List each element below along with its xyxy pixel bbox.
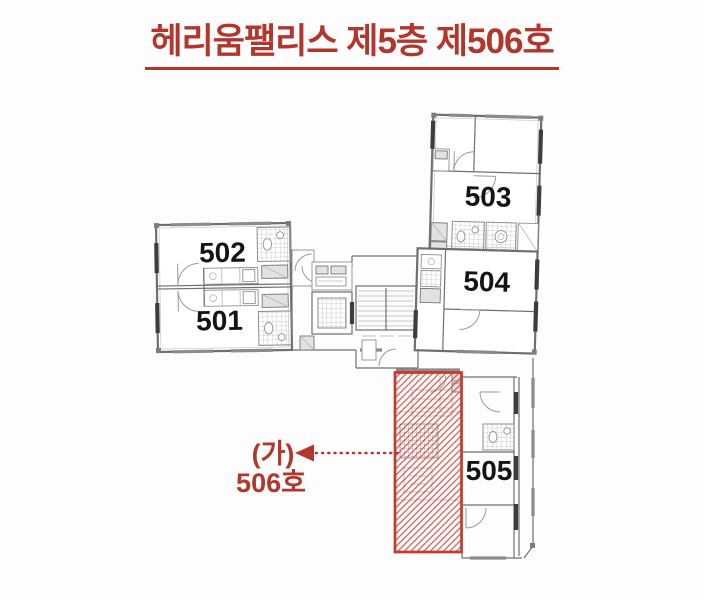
bathroom-502 bbox=[257, 227, 291, 262]
unit-503-bathrooms bbox=[452, 221, 539, 251]
stairs bbox=[356, 286, 416, 336]
scanned-floorplan-page: 헤리움팰리스 제5층 제506호 bbox=[0, 0, 704, 600]
room-label-502: 502 bbox=[199, 237, 246, 269]
bottom-wing: 505 bbox=[395, 358, 535, 558]
room-label-505: 505 bbox=[466, 455, 513, 486]
unit-506-annotation: (가) 506호 bbox=[236, 439, 402, 498]
kitchen-counter-501 bbox=[204, 289, 258, 306]
central-core bbox=[292, 250, 418, 368]
unit-505-bathroom bbox=[483, 424, 514, 450]
annotation-line1: (가) bbox=[252, 439, 295, 469]
kitchen-counter-502 bbox=[204, 267, 258, 284]
room-label-501: 501 bbox=[196, 305, 243, 337]
elevator bbox=[312, 292, 352, 334]
annotation-line2: 506호 bbox=[236, 468, 306, 498]
right-wing-units-503-504: 503 504 bbox=[415, 112, 544, 354]
unit-504-kitchen bbox=[420, 254, 441, 303]
room-label-504: 504 bbox=[463, 266, 511, 298]
dotted-arrow-to-506 bbox=[295, 445, 402, 462]
arrowhead-left-icon bbox=[295, 445, 314, 462]
machine-room bbox=[312, 262, 352, 290]
bathroom-501 bbox=[258, 311, 292, 346]
left-wing-units-502-501: 502 501 bbox=[154, 221, 293, 353]
unit-506-highlight bbox=[395, 373, 462, 553]
room-label-503: 503 bbox=[464, 181, 512, 213]
floor-plan-drawing: 502 501 bbox=[0, 0, 704, 600]
